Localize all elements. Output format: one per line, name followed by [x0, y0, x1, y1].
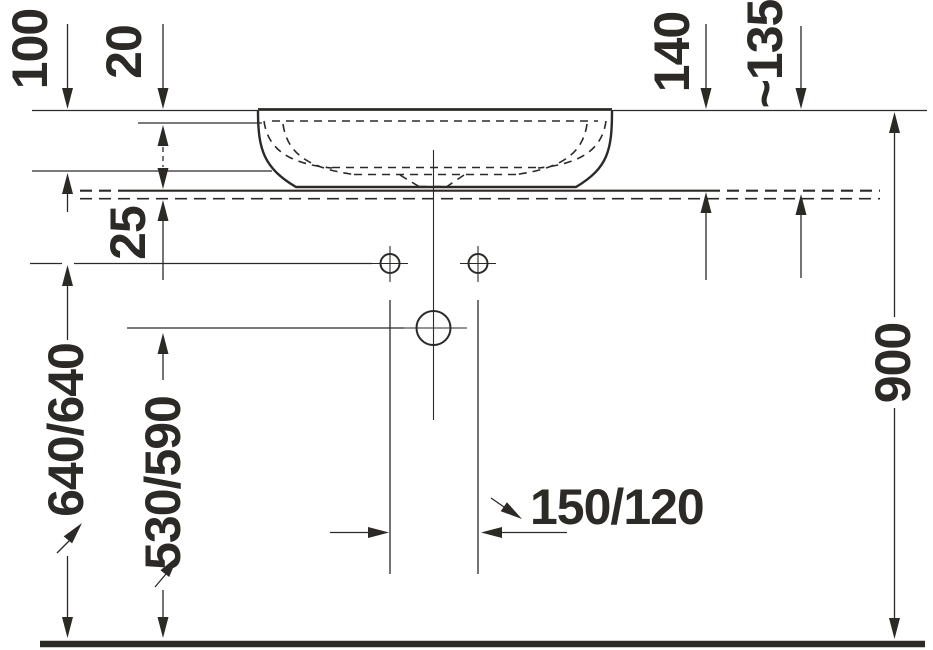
fixing-hole-right — [460, 246, 496, 574]
dimension-labels: 100 20 25 640/640 530/590 140 ~135 900 1… — [2, 0, 921, 570]
dim-label-640-640: 640/640 — [38, 343, 94, 517]
dim-640-diagonal-stem — [57, 540, 70, 553]
dim-530-arrow-up — [158, 333, 169, 354]
fixing-hole-left-crosshair — [372, 246, 408, 282]
dim-640-arrow-down — [62, 617, 73, 638]
dim-150-arrow-right — [368, 527, 389, 538]
dim-label-135: ~135 — [737, 0, 793, 108]
dim-20-arrow-up — [158, 125, 169, 146]
dim-640-diagonal-arrow — [64, 523, 82, 543]
dim-135-arrow-down — [796, 88, 807, 109]
dim-140-arrow-down — [701, 88, 712, 109]
counter-line — [80, 191, 880, 199]
dim-150-diagonal-stem — [491, 498, 504, 507]
basin-inner-wall-right-2 — [516, 124, 587, 175]
dim-label-20: 20 — [96, 25, 152, 79]
dim-140-arrow-up — [701, 192, 712, 213]
dim-150-arrow-left — [481, 527, 502, 538]
drain-recess-dashed — [400, 175, 464, 187]
fixing-hole-left — [372, 246, 408, 574]
dim-150-diagonal-arrow — [501, 502, 522, 519]
dim-100-arrow-down — [62, 88, 73, 109]
dim-900-arrow-down — [889, 618, 900, 639]
tap-hole-circle — [402, 311, 467, 345]
basin-inner-wall-right-1 — [538, 121, 606, 168]
dim-20-arrow-down — [158, 88, 169, 109]
fixing-hole-right-crosshair — [460, 246, 496, 282]
dim-530-arrow-down — [158, 617, 169, 638]
dim-label-140: 140 — [644, 12, 700, 92]
dim-100-arrow-up — [62, 173, 73, 194]
dim-label-25: 25 — [100, 206, 156, 260]
washbasin-dimension-drawing: 100 20 25 640/640 530/590 140 ~135 900 1… — [0, 0, 933, 650]
dim-label-100: 100 — [2, 9, 58, 89]
technical-drawing-canvas: 100 20 25 640/640 530/590 140 ~135 900 1… — [0, 0, 933, 650]
basin-inner-dashed — [264, 121, 606, 187]
basin-inner-wall-left-2 — [283, 124, 354, 175]
dim-label-900: 900 — [865, 323, 921, 403]
basin-inner-wall-left-1 — [264, 121, 332, 168]
dim-label-530-590: 530/590 — [135, 396, 191, 570]
dim-900-arrow-up — [889, 112, 900, 133]
dim-25-arrow-down — [158, 168, 169, 189]
dim-135-arrow-up — [796, 194, 807, 215]
dim-640-arrow-up — [62, 265, 73, 286]
dim-label-150-120: 150/120 — [530, 479, 704, 535]
dim-530-diagonal-stem — [155, 574, 166, 587]
dim-25-arrow-up — [158, 200, 169, 221]
basin-outer-shell — [258, 111, 612, 187]
